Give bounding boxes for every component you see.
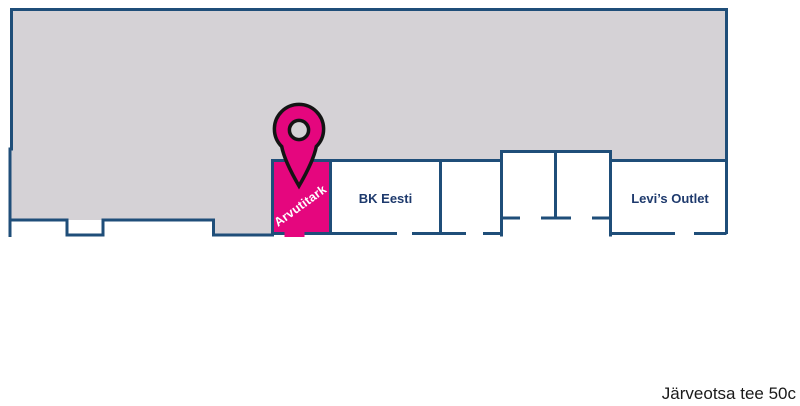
unit-label-levis-outlet: Levi’s Outlet bbox=[631, 191, 709, 206]
map-pin-hole bbox=[289, 120, 308, 139]
highlighted-unit-doorway bbox=[285, 230, 305, 237]
floor-plan-canvas: BK Eesti Levi’s Outlet Arvutitark bbox=[0, 0, 800, 406]
address-caption: Järveotsa tee 50c bbox=[662, 384, 796, 404]
unit-label-bk-eesti: BK Eesti bbox=[359, 191, 412, 206]
mall-floor-plan: BK Eesti Levi’s Outlet Arvutitark Järveo… bbox=[0, 0, 800, 406]
